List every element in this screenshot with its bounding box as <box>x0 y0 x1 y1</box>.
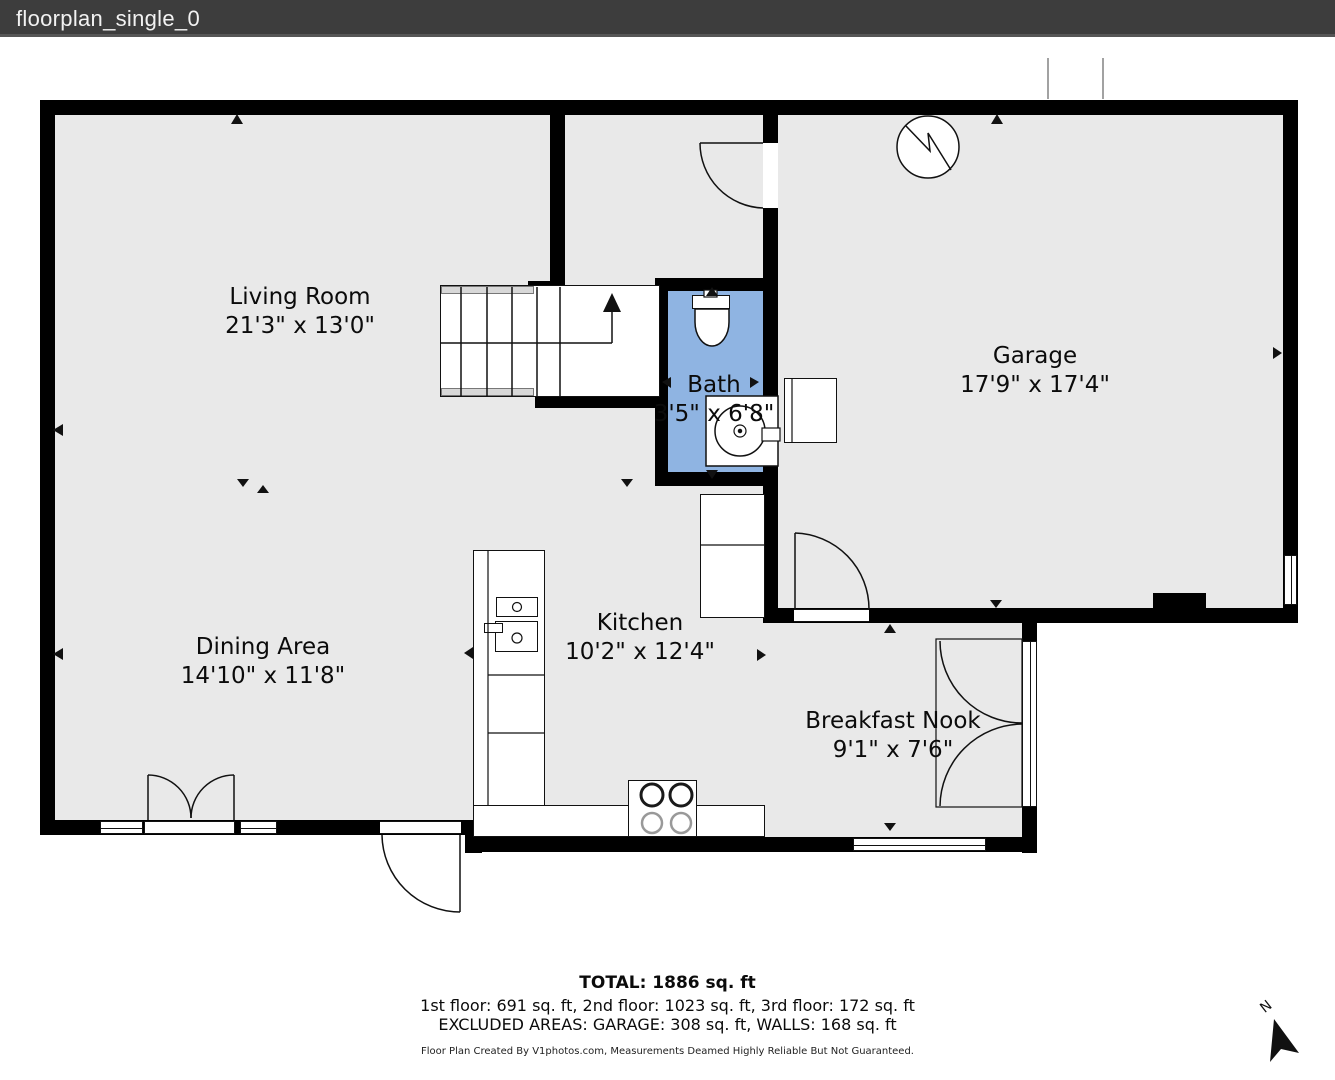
toilet-tank <box>692 295 730 309</box>
room-label-breakfast-nook: Breakfast Nook 9'1" x 7'6" <box>805 707 980 765</box>
hall-door-opening <box>763 143 778 208</box>
pantry-cabinet <box>700 494 765 618</box>
window <box>100 821 143 834</box>
wall-living-right <box>550 100 565 292</box>
wall-right <box>1283 100 1298 623</box>
kitchen-faucet <box>484 623 503 633</box>
nook-french-door-glazing <box>1022 641 1037 807</box>
dimension-extension-lines <box>1048 58 1103 99</box>
room-dims: 21'3" x 13'0" <box>225 312 375 341</box>
kitchen-counter-column <box>473 550 545 807</box>
page-title: floorplan_single_0 <box>16 0 200 37</box>
water-heater <box>784 378 837 443</box>
room-dims: 9'1" x 7'6" <box>805 736 980 765</box>
staircase <box>440 285 660 397</box>
garage-door-opening <box>794 609 869 622</box>
kitchen-sink-bowl <box>496 597 538 617</box>
wall-bath-bottom <box>655 472 765 486</box>
door-swing-front <box>382 835 460 912</box>
room-dims: 10'2" x 12'4" <box>565 638 715 667</box>
room-name: Garage <box>960 342 1110 371</box>
kitchen-counter-row <box>473 805 765 837</box>
window-garage-right <box>1284 555 1297 605</box>
total-area-text: TOTAL: 1886 sq. ft <box>0 973 1335 993</box>
room-label-kitchen: Kitchen 10'2" x 12'4" <box>565 609 715 667</box>
room-dims: 14'10" x 11'8" <box>181 662 345 691</box>
wall-left <box>40 100 55 835</box>
wall-garage-step <box>1153 593 1206 609</box>
room-label-garage: Garage 17'9" x 17'4" <box>960 342 1110 400</box>
room-name: Breakfast Nook <box>805 707 980 736</box>
french-door-sill <box>144 821 235 834</box>
stove <box>628 780 697 837</box>
floor-areas-text: 1st floor: 691 sq. ft, 2nd floor: 1023 s… <box>0 996 1335 1015</box>
disclaimer-text: Floor Plan Created By V1photos.com, Meas… <box>0 1046 1335 1057</box>
wall-bath-top <box>655 278 765 291</box>
room-name: Bath <box>654 371 775 400</box>
excluded-areas-text: EXCLUDED AREAS: GARAGE: 308 sq. ft, WALL… <box>0 1015 1335 1034</box>
room-dims: 17'9" x 17'4" <box>960 371 1110 400</box>
window-nook <box>853 838 986 851</box>
room-dims: 3'5" x 6'8" <box>654 400 775 429</box>
room-label-bath: Bath 3'5" x 6'8" <box>654 371 775 429</box>
wall-top <box>40 100 1298 115</box>
stair-rail <box>441 388 534 396</box>
window <box>240 821 277 834</box>
stair-rail <box>441 286 534 294</box>
room-name: Living Room <box>225 283 375 312</box>
room-name: Dining Area <box>181 633 345 662</box>
floorplan-canvas: Living Room 21'3" x 13'0" Dining Area 14… <box>0 0 1335 1080</box>
room-name: Kitchen <box>565 609 715 638</box>
front-door-opening <box>380 821 461 834</box>
room-label-living-room: Living Room 21'3" x 13'0" <box>225 283 375 341</box>
title-bar: floorplan_single_0 <box>0 0 1335 37</box>
room-label-dining-area: Dining Area 14'10" x 11'8" <box>181 633 345 691</box>
